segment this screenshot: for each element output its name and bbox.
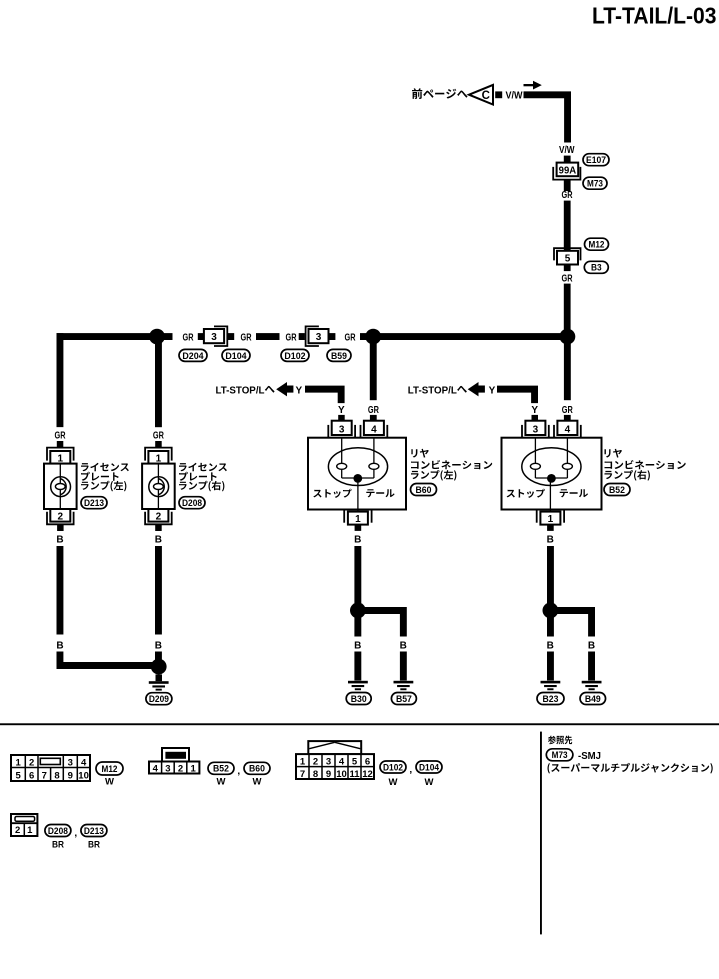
svg-text:3: 3 <box>339 424 345 435</box>
svg-text:4: 4 <box>371 424 377 435</box>
svg-text:D102: D102 <box>383 762 403 773</box>
svg-text:8: 8 <box>54 771 59 782</box>
svg-text:4: 4 <box>339 756 345 767</box>
svg-text:1: 1 <box>16 757 22 768</box>
svg-text:M73: M73 <box>587 179 603 190</box>
svg-text:3: 3 <box>533 424 539 435</box>
svg-text:3: 3 <box>211 332 217 343</box>
svg-text:D102: D102 <box>284 351 305 362</box>
svg-text:BR: BR <box>88 839 100 850</box>
svg-text:2: 2 <box>156 512 162 523</box>
svg-text:M73: M73 <box>552 750 568 761</box>
svg-text:7: 7 <box>42 771 47 782</box>
svg-text:C: C <box>482 90 490 102</box>
svg-text:B: B <box>547 641 554 652</box>
svg-text:9: 9 <box>68 771 73 782</box>
svg-text:1: 1 <box>27 825 33 836</box>
svg-text:D208: D208 <box>48 826 68 837</box>
svg-text:B60: B60 <box>249 764 265 775</box>
svg-text:11: 11 <box>349 769 360 780</box>
svg-text:W: W <box>105 776 114 787</box>
svg-text:D208: D208 <box>182 498 202 509</box>
svg-text:B: B <box>155 535 162 546</box>
svg-text:3: 3 <box>165 763 170 774</box>
svg-text:-SMJ: -SMJ <box>578 751 601 762</box>
svg-text:10: 10 <box>78 771 89 782</box>
svg-text:B: B <box>400 641 407 652</box>
svg-text:3: 3 <box>316 332 322 343</box>
svg-text:GR: GR <box>562 273 574 284</box>
svg-text:GR: GR <box>153 431 165 442</box>
svg-text:GR: GR <box>183 332 195 343</box>
svg-text:B: B <box>56 535 63 546</box>
svg-text:7: 7 <box>300 769 305 780</box>
svg-text:B: B <box>155 641 162 652</box>
svg-text:5: 5 <box>352 756 358 767</box>
svg-text:B: B <box>354 535 361 546</box>
svg-text:B49: B49 <box>585 694 601 705</box>
svg-text:B52: B52 <box>213 764 229 775</box>
svg-text:BR: BR <box>52 839 64 850</box>
svg-text:E107: E107 <box>586 155 606 166</box>
svg-text:3: 3 <box>68 757 73 768</box>
svg-text:D209: D209 <box>149 694 169 705</box>
svg-text:D104: D104 <box>225 351 247 362</box>
svg-text:,: , <box>74 828 77 839</box>
svg-text:GR: GR <box>55 431 67 442</box>
svg-text:4: 4 <box>81 757 87 768</box>
svg-text:LT-STOP/L: LT-STOP/L <box>216 386 265 397</box>
svg-text:B59: B59 <box>331 351 347 362</box>
svg-text:Y: Y <box>338 405 345 416</box>
svg-text:GR: GR <box>241 332 253 343</box>
svg-text:D204: D204 <box>182 351 204 362</box>
svg-text:4: 4 <box>153 763 159 774</box>
svg-text:B: B <box>547 535 554 546</box>
svg-text:GR: GR <box>562 190 574 201</box>
svg-text:2: 2 <box>178 763 183 774</box>
svg-text:M12: M12 <box>589 240 605 251</box>
svg-text:4: 4 <box>565 424 571 435</box>
svg-text:3: 3 <box>326 756 331 767</box>
svg-text:Y: Y <box>295 386 302 397</box>
svg-text:6: 6 <box>29 771 34 782</box>
svg-text:,: , <box>409 765 412 776</box>
svg-text:W: W <box>217 776 226 787</box>
svg-text:9: 9 <box>326 769 331 780</box>
svg-text:W: W <box>253 776 262 787</box>
svg-text:,: , <box>237 766 240 777</box>
svg-text:B23: B23 <box>543 694 559 705</box>
svg-text:LT-TAIL/L-03: LT-TAIL/L-03 <box>592 3 717 29</box>
svg-text:D213: D213 <box>84 498 104 509</box>
svg-text:2: 2 <box>15 825 20 836</box>
svg-text:1: 1 <box>548 514 554 525</box>
svg-text:D104: D104 <box>419 762 440 773</box>
svg-text:99A: 99A <box>559 165 577 176</box>
svg-text:V/W: V/W <box>506 91 524 102</box>
svg-text:Y: Y <box>531 405 538 416</box>
svg-text:1: 1 <box>300 756 306 767</box>
svg-text:2: 2 <box>58 512 64 523</box>
svg-text:M12: M12 <box>102 764 118 775</box>
svg-text:B57: B57 <box>396 694 412 705</box>
svg-text:1: 1 <box>190 763 196 774</box>
svg-text:GR: GR <box>562 405 574 416</box>
svg-text:B60: B60 <box>416 485 432 496</box>
svg-text:12: 12 <box>362 769 373 780</box>
svg-text:5: 5 <box>565 254 571 265</box>
svg-text:5: 5 <box>16 771 22 782</box>
svg-text:B52: B52 <box>609 485 625 496</box>
svg-text:B3: B3 <box>591 263 602 274</box>
svg-text:B: B <box>56 641 63 652</box>
svg-text:D213: D213 <box>84 826 104 837</box>
svg-text:LT-STOP/L: LT-STOP/L <box>408 386 457 397</box>
svg-text:GR: GR <box>345 332 357 343</box>
svg-text:2: 2 <box>29 757 34 768</box>
svg-text:8: 8 <box>313 769 318 780</box>
svg-text:GR: GR <box>286 332 298 343</box>
svg-text:B: B <box>354 641 361 652</box>
svg-text:W: W <box>425 777 434 788</box>
svg-text:GR: GR <box>368 405 380 416</box>
svg-text:B30: B30 <box>351 694 367 705</box>
svg-text:V/W: V/W <box>559 145 575 156</box>
svg-text:W: W <box>389 777 398 788</box>
svg-text:B: B <box>588 641 595 652</box>
svg-text:Y: Y <box>489 386 496 397</box>
svg-text:2: 2 <box>313 756 318 767</box>
svg-text:1: 1 <box>355 514 361 525</box>
svg-text:6: 6 <box>365 756 370 767</box>
svg-text:10: 10 <box>336 769 347 780</box>
